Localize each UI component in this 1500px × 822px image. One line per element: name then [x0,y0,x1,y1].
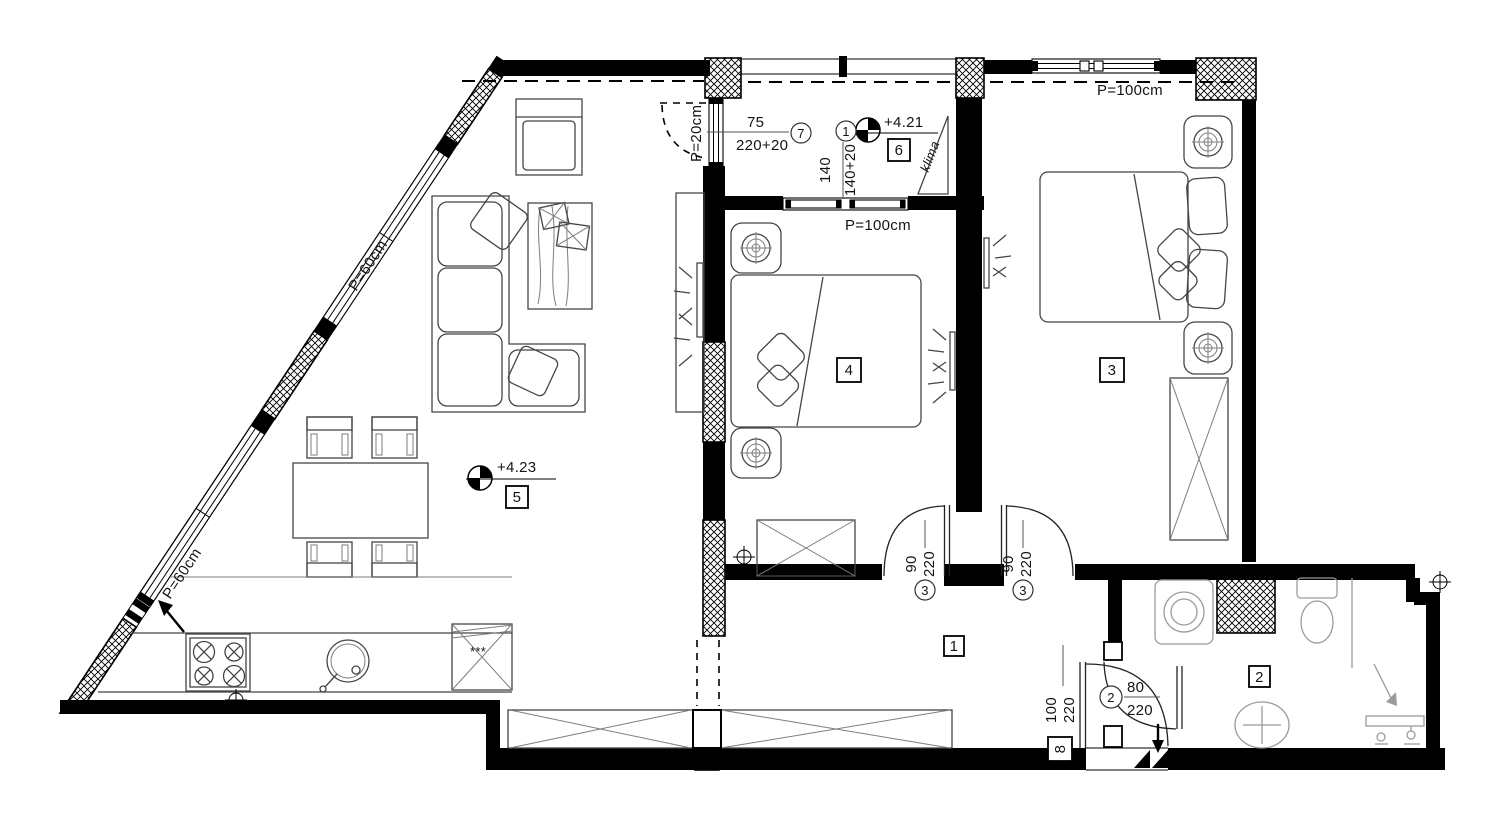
checkered-pillow [468,190,529,251]
loggia-door-mark: 7 [797,126,805,141]
column-hatched [705,58,741,98]
armchair [516,99,582,175]
parapet-20-label: P=20cm [688,105,705,162]
wall-lamp-rays-icon [928,329,946,403]
checkered-pillow [506,344,559,397]
loggia-window-width-total: 140+20 [842,144,859,196]
wall-tv [928,329,955,403]
door-height: 220 [1018,551,1035,577]
tv-dresser [528,203,592,309]
door-height: 220 [1061,697,1078,723]
bathroom-fixtures [1155,578,1424,748]
bedroom-east-furniture [984,116,1232,540]
room-loggia-number: 6 [895,142,904,159]
corner-hatched [1196,58,1256,100]
bedroom-east-door-dim: 90 220 3 [1000,520,1035,600]
doors [884,505,1182,768]
corridor-wardrobe [508,710,952,748]
wall-lamp-rays-icon [674,267,692,366]
washing-machine [1155,580,1213,644]
door-mark: 3 [921,583,929,598]
column-hatched [956,58,984,98]
room-bedroom-center-number: 4 [845,362,854,379]
loggia-front-window [783,198,908,210]
survey-marker-icon [1429,571,1451,593]
room-bathroom-number: 2 [1255,669,1264,686]
shaft-hatched [1217,575,1275,633]
loggia-window-dim: 1 140 140+20 [817,121,859,199]
door-width: 90 [903,555,920,572]
door-height: 220 [1127,702,1153,719]
loggia-door-height: 220+20 [736,137,788,154]
room-living-number: 5 [513,489,522,506]
dining-table-set [293,417,428,577]
double-bed [1040,172,1228,322]
fridge: *** [452,624,512,690]
facade-arrow-icon [158,600,184,632]
facade-diagonal-wall [59,56,510,714]
elevation-marker-living: +4.23 5 [466,459,556,508]
wall-tv [984,235,1011,288]
toilet [1297,578,1337,643]
door-width: 100 [1043,697,1060,723]
sink [320,640,369,692]
bedroom-center-furniture [731,223,955,576]
door-width: 90 [1000,555,1017,572]
door-mark: 8 [1052,745,1069,754]
chair [372,417,417,458]
bedroom-center-door-dim: 90 220 3 [903,520,938,600]
loggia-door-width: 75 [747,114,764,131]
room-bedroom-east-number: 3 [1108,362,1117,379]
loggia-window-mark: 1 [842,124,850,139]
nightstand-lamp [731,428,781,478]
bedroom-east-window [1032,59,1160,73]
elevation-living-label: +4.23 [497,459,536,476]
labels: P=60cm P=60cm P=20cm P=100cm P=100cm 75 … [159,82,1163,761]
fridge-stars-label: *** [470,644,486,659]
nightstand-lamp [1184,322,1232,374]
parapet-upper-label: P=60cm [345,237,391,294]
parapet-100-loggia-label: P=100cm [845,217,911,234]
room-corridor-number: 1 [950,638,959,655]
parapet-100-top-label: P=100cm [1097,82,1163,99]
drain-arrow-icon [1386,692,1397,706]
loggia-side-window [709,98,723,168]
entrance-door [1080,662,1168,768]
entrance-triangle-icon [1152,750,1168,768]
door-height: 220 [921,551,938,577]
elevation-loggia-label: +4.21 [884,114,923,131]
nightstand-lamp [1184,116,1232,168]
door-mark: 3 [1019,583,1027,598]
column-hatched [695,748,719,770]
chair [307,417,352,458]
chair [372,542,417,577]
sofa [432,190,585,412]
stove [186,634,250,691]
living-room-furniture [293,99,704,577]
entrance-door-dim: 100 220 8 [1043,645,1078,761]
door-mark: 2 [1107,690,1115,705]
washbasin [1235,702,1289,748]
double-bed [731,275,921,427]
shower [1352,578,1424,744]
floor-plan-drawing: *** [0,0,1500,822]
wardrobe [1170,378,1228,540]
door-width: 80 [1127,679,1144,696]
loggia-window-width: 140 [817,157,834,183]
floor-plan-sheet: *** [0,0,1500,822]
entry-arrow-head-icon [1152,740,1164,753]
tv-cabinet [674,193,704,412]
bathroom-door-dim: 2 80 220 [1100,679,1160,719]
klima-label: klima [917,139,942,174]
nightstand-lamp [731,223,781,273]
wall-lamp-rays-icon [993,235,1011,277]
chair [307,542,352,577]
entrance-triangle-icon [1134,750,1150,768]
